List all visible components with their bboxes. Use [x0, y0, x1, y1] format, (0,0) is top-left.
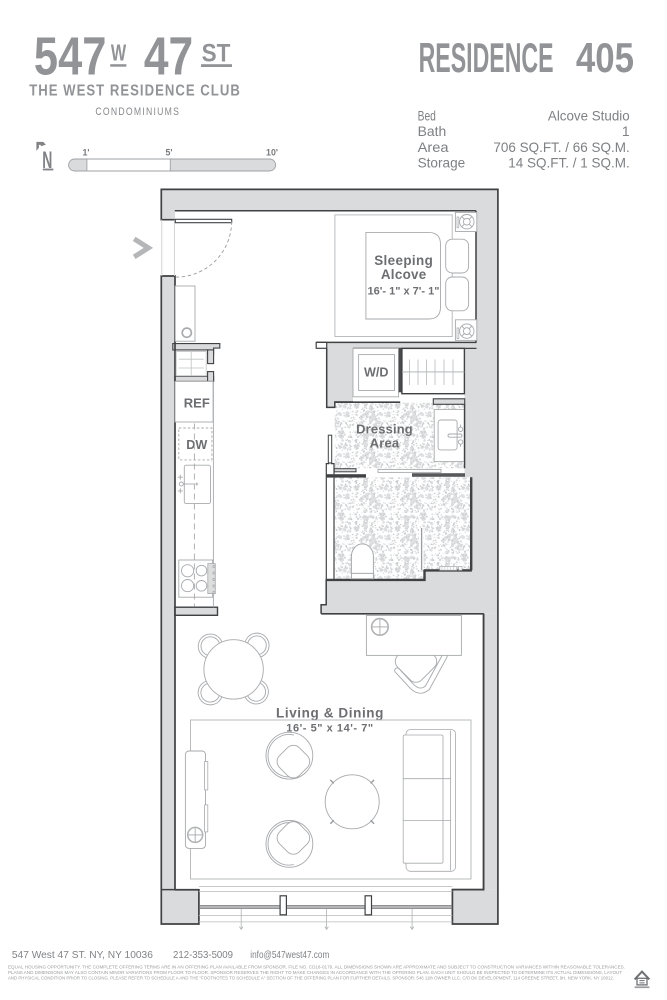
svg-text:10': 10': [266, 148, 278, 158]
svg-text:Dressing: Dressing: [356, 422, 413, 437]
svg-text:Bath: Bath: [418, 123, 447, 139]
svg-text:547 West 47 ST. NY, NY 10036: 547 West 47 ST. NY, NY 10036: [12, 950, 153, 961]
svg-text:547: 547: [34, 27, 107, 86]
svg-text:W/D: W/D: [364, 366, 388, 380]
svg-text:Area: Area: [418, 139, 449, 155]
svg-text:Bed: Bed: [418, 108, 436, 124]
svg-text:47: 47: [144, 28, 193, 87]
svg-text:Sleeping: Sleeping: [374, 253, 433, 268]
svg-text:EQUAL HOUSING OPPORTUNITY. THE: EQUAL HOUSING OPPORTUNITY. THE COMPLETE …: [8, 965, 625, 970]
svg-text:Living & Dining: Living & Dining: [276, 706, 384, 721]
svg-text:AND PHYSICAL CONDITION PRIOR T: AND PHYSICAL CONDITION PRIOR TO CLOSING.…: [8, 975, 614, 980]
svg-text:212-353-5009: 212-353-5009: [173, 950, 233, 961]
svg-text:Area: Area: [370, 436, 400, 451]
svg-text:Alcove: Alcove: [381, 267, 427, 282]
svg-text:RESIDENCE: RESIDENCE: [419, 36, 554, 82]
svg-text:Storage: Storage: [418, 154, 466, 170]
svg-text:405: 405: [576, 35, 634, 82]
svg-text:16'- 1" x 7'- 1": 16'- 1" x 7'- 1": [368, 286, 440, 298]
svg-text:W: W: [111, 41, 127, 66]
svg-text:REF: REF: [184, 396, 210, 411]
svg-text:1': 1': [83, 148, 90, 158]
svg-text:Alcove Studio: Alcove Studio: [548, 108, 630, 124]
svg-text:DW: DW: [186, 438, 207, 452]
svg-text:5': 5': [166, 148, 173, 158]
svg-text:ST: ST: [202, 39, 231, 67]
svg-text:706 SQ.FT. / 66 SQ.M.: 706 SQ.FT. / 66 SQ.M.: [493, 139, 629, 155]
svg-text:CONDOMINIUMS: CONDOMINIUMS: [95, 106, 180, 118]
svg-text:PLANS AND DIMENSIONS MAY ALSO: PLANS AND DIMENSIONS MAY ALSO CONTAIN MI…: [8, 970, 622, 975]
svg-text:14 SQ.FT. / 1 SQ.M.: 14 SQ.FT. / 1 SQ.M.: [508, 154, 629, 170]
svg-text:16'- 5" x 14'- 7": 16'- 5" x 14'- 7": [286, 723, 373, 735]
svg-text:THE WEST RESIDENCE CLUB: THE WEST RESIDENCE CLUB: [29, 83, 241, 100]
svg-text:1: 1: [622, 123, 630, 139]
svg-text:info@547west47.com: info@547west47.com: [250, 950, 329, 961]
